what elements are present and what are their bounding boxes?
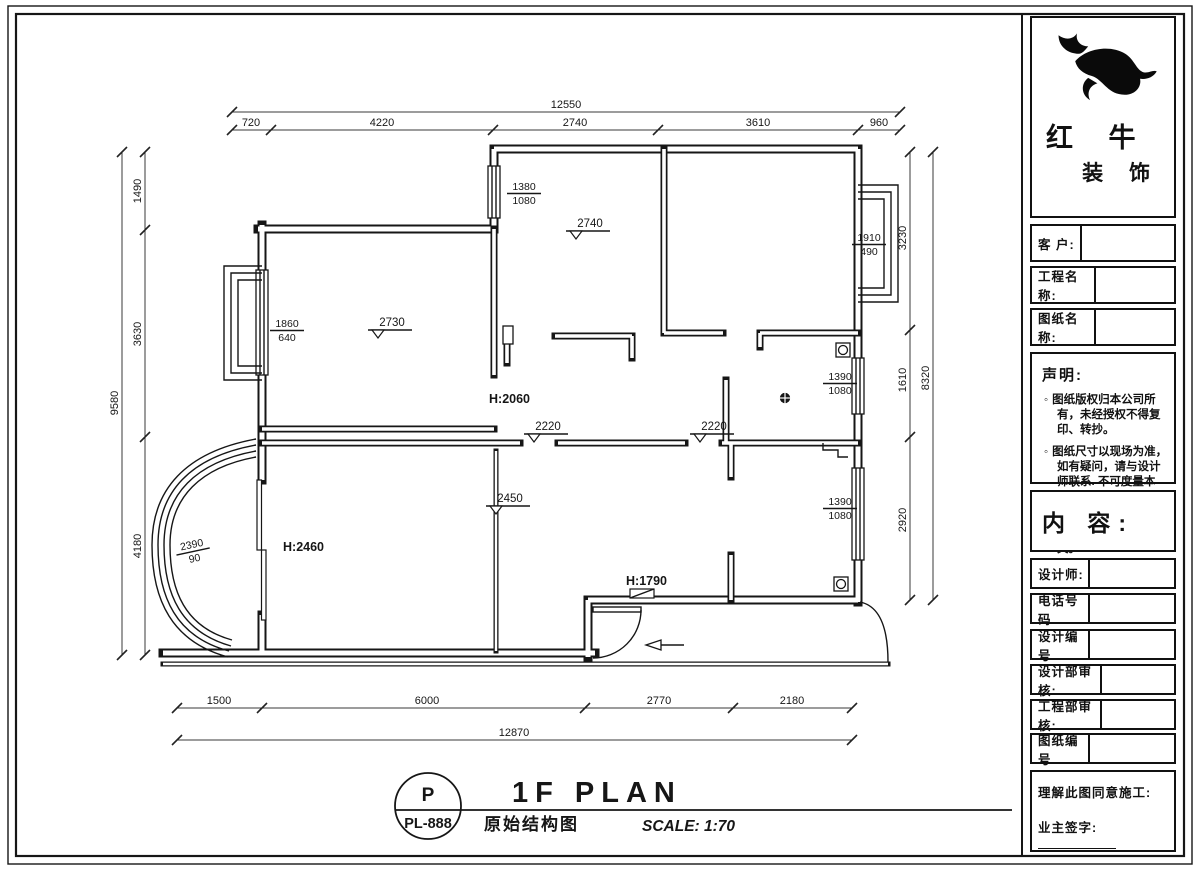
height-label-h1790: H:1790 — [626, 574, 667, 588]
svg-text:2730: 2730 — [379, 317, 405, 329]
logo-box: 红 牛 装 饰 — [1030, 16, 1176, 218]
entry-arrow — [646, 640, 684, 650]
height-label-h2060: H:2060 — [489, 392, 530, 406]
window-left-glazing — [256, 270, 268, 375]
dim-bottom-seg-2: 6000 — [415, 695, 439, 707]
svg-text:490: 490 — [860, 246, 878, 258]
height-labels: H:2060 H:2460 H:1790 — [283, 392, 667, 588]
entry-door — [593, 607, 641, 658]
sheet-title-cn: 原始结构图 — [484, 814, 579, 834]
dim-bottom-seg-3: 2770 — [647, 695, 671, 707]
field-design-no: 设计编号 — [1030, 629, 1176, 660]
window-size-labels: 1380 1080 1860 640 1910 490 1390 1080 13… — [174, 181, 886, 568]
dim-top-seg-2: 4220 — [370, 117, 394, 129]
drawing-number: PL-888 — [404, 816, 452, 832]
sheet-scale: SCALE: 1:70 — [642, 818, 735, 835]
svg-text:1080: 1080 — [828, 510, 852, 522]
field-project-name: 工程名称: — [1030, 266, 1176, 304]
field-client: 客 户: — [1030, 224, 1176, 262]
field-designer: 设计师: — [1030, 558, 1176, 589]
terrace-edge-arc — [860, 602, 888, 662]
svg-text:90: 90 — [188, 552, 202, 566]
field-engineering-review-label: 工程部审核: — [1032, 701, 1102, 728]
dim-bottom-seg-4: 2180 — [780, 695, 804, 707]
dim-top-seg-4: 3610 — [746, 117, 770, 129]
dim-left-seg-1: 1490 — [132, 179, 144, 203]
entry-door-arc — [593, 610, 641, 658]
bull-logo-icon — [1043, 26, 1163, 114]
dim-right-seg-1: 3230 — [897, 226, 909, 250]
svg-text:640: 640 — [278, 332, 296, 344]
svg-text:1080: 1080 — [828, 385, 852, 397]
level-mark-2740: 2740 — [566, 218, 610, 239]
lintel-symbol — [630, 589, 654, 598]
dim-right-seg-3: 2920 — [897, 508, 909, 532]
svg-text:2220: 2220 — [535, 421, 561, 433]
level-marks: 2740 2730 2220 2220 2450 — [368, 218, 734, 514]
svg-text:1390: 1390 — [828, 496, 852, 508]
dim-top-overall: 12550 — [551, 99, 582, 111]
sliding-door-left — [257, 480, 266, 620]
dim-right-seg-2: 1610 — [897, 368, 909, 392]
window-label-1380-1080: 1380 1080 — [507, 181, 541, 207]
dim-bottom-overall: 12870 — [499, 727, 530, 739]
approval-box: 理解此图同意施工: 业主签字: — [1030, 770, 1176, 852]
field-drawing-no: 图纸编号 — [1030, 733, 1176, 764]
footer: P PL-888 1F PLAN 原始结构图 SCALE: 1:70 — [395, 773, 1012, 839]
approval-line2: 业主签字: — [1038, 817, 1174, 852]
field-design-review: 设计部审核: — [1030, 664, 1176, 695]
svg-text:2390: 2390 — [179, 537, 204, 554]
field-phone-label: 电话号码 — [1032, 595, 1090, 622]
field-design-review-label: 设计部审核: — [1032, 666, 1102, 693]
window-upper-middle — [488, 166, 500, 218]
drain-symbol — [779, 392, 791, 404]
dim-top-seg-5: 960 — [870, 117, 888, 129]
window-label-2390-90: 2390 90 — [174, 536, 213, 569]
dim-right-overall: 8320 — [920, 366, 932, 390]
svg-text:2450: 2450 — [497, 493, 523, 505]
svg-text:2220: 2220 — [701, 421, 727, 433]
dim-left-seg-3: 4180 — [132, 534, 144, 558]
window-label-1860-640: 1860 640 — [270, 318, 304, 344]
level-mark-2730: 2730 — [368, 317, 412, 338]
svg-text:1910: 1910 — [857, 232, 881, 244]
field-phone: 电话号码 — [1030, 593, 1176, 624]
walls — [163, 149, 888, 664]
field-drawing-no-label: 图纸编号 — [1032, 735, 1090, 762]
field-project-name-label: 工程名称: — [1032, 268, 1096, 302]
svg-text:1080: 1080 — [512, 195, 536, 207]
field-drawing-name: 图纸名称: — [1030, 308, 1176, 346]
window-bath-right — [852, 358, 864, 414]
svg-text:2740: 2740 — [577, 218, 603, 230]
brand-name-top: 红 牛 — [1046, 116, 1174, 155]
doors — [257, 480, 641, 658]
approval-line1: 理解此图同意施工: — [1038, 782, 1174, 801]
door-jamb-stub — [503, 326, 513, 344]
owner-signature-label: 业主签字: — [1038, 821, 1097, 835]
field-client-label: 客 户: — [1032, 226, 1082, 260]
sheet-border — [8, 6, 1192, 864]
content-box: 内 容: — [1030, 490, 1176, 552]
field-drawing-name-label: 图纸名称: — [1032, 310, 1096, 344]
field-design-no-label: 设计编号 — [1032, 631, 1090, 658]
drawing-sheet: 12550 720 4220 2740 3610 960 9580 1490 3… — [0, 0, 1200, 871]
svg-text:1860: 1860 — [275, 318, 299, 330]
level-mark-2450: 2450 — [486, 493, 530, 514]
field-engineering-review: 工程部审核: — [1030, 699, 1176, 730]
stamp-letter: P — [422, 785, 435, 806]
level-mark-2220-a: 2220 — [524, 421, 568, 442]
dim-left-overall: 9580 — [109, 391, 121, 415]
column-symbol-lower-right — [834, 577, 848, 591]
dim-top-seg-3: 2740 — [563, 117, 587, 129]
content-heading: 内 容: — [1042, 504, 1174, 538]
dim-top-seg-1: 720 — [242, 117, 260, 129]
signature-line — [1038, 836, 1116, 849]
statement-box: 声明: 图纸版权归本公司所有，未经授权不得复印、转抄。 图纸尺寸以现场为准，如有… — [1030, 352, 1176, 484]
svg-text:1390: 1390 — [828, 371, 852, 383]
sheet-title-en: 1F PLAN — [512, 777, 682, 809]
statement-heading: 声明: — [1042, 364, 1174, 385]
statement-item: 图纸版权归本公司所有，未经授权不得复印、转抄。 — [1044, 393, 1168, 439]
dim-left-seg-2: 3630 — [132, 322, 144, 346]
field-designer-label: 设计师: — [1032, 560, 1090, 587]
dim-bottom-seg-1: 1500 — [207, 695, 231, 707]
height-label-h2460: H:2460 — [283, 540, 324, 554]
column-symbol-bath — [836, 343, 850, 357]
floor-plan-svg: 12550 720 4220 2740 3610 960 9580 1490 3… — [0, 0, 1200, 871]
window-lower-right — [852, 468, 864, 560]
svg-text:1380: 1380 — [512, 181, 536, 193]
brand-name-bottom: 装 饰 — [1032, 157, 1160, 187]
